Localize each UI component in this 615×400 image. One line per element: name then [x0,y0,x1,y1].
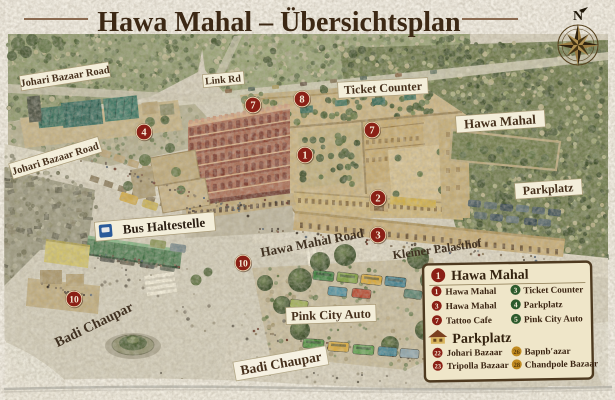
svg-text:1: 1 [436,271,441,282]
svg-text:7: 7 [250,101,255,112]
svg-text:Hawa Mahal – Übersichtsplan: Hawa Mahal – Übersichtsplan [97,7,461,38]
svg-text:Pink City Auto: Pink City Auto [524,313,583,324]
svg-text:4: 4 [141,128,147,139]
svg-text:3: 3 [435,302,439,311]
svg-text:28: 28 [513,362,520,369]
svg-text:2: 2 [375,194,380,205]
svg-text:Hawa Mahal: Hawa Mahal [446,300,497,311]
svg-text:Tattoo Cafe: Tattoo Cafe [446,315,492,326]
svg-text:Bapnbʹazar: Bapnbʹazar [524,346,570,357]
svg-text:Tripolla Bazaar: Tripolla Bazaar [447,360,509,371]
svg-text:Parkplatz: Parkplatz [524,299,563,310]
svg-text:4: 4 [514,300,518,309]
svg-text:Johari Bazaar: Johari Bazaar [446,347,502,358]
svg-text:26: 26 [513,349,520,356]
svg-text:Hawa Mahal: Hawa Mahal [451,268,529,284]
svg-text:Parkplatz: Parkplatz [452,331,511,347]
svg-text:Ticket Counter: Ticket Counter [523,284,583,295]
svg-text:10: 10 [69,295,79,305]
svg-text:5: 5 [514,315,518,324]
svg-text:1: 1 [435,287,439,296]
svg-text:Pink City Auto: Pink City Auto [291,307,371,324]
svg-text:7: 7 [369,126,374,137]
svg-text:Chandpole Bazaar: Chandpole Bazaar [525,358,598,369]
svg-text:22: 22 [434,350,441,357]
svg-text:10: 10 [238,259,248,269]
svg-text:3: 3 [514,286,518,295]
svg-text:23: 23 [434,363,441,370]
svg-text:1: 1 [302,151,307,162]
svg-text:8: 8 [299,95,304,106]
svg-text:3: 3 [375,231,380,242]
svg-text:7: 7 [435,316,439,325]
svg-text:Hawa Mahal: Hawa Mahal [445,286,496,297]
